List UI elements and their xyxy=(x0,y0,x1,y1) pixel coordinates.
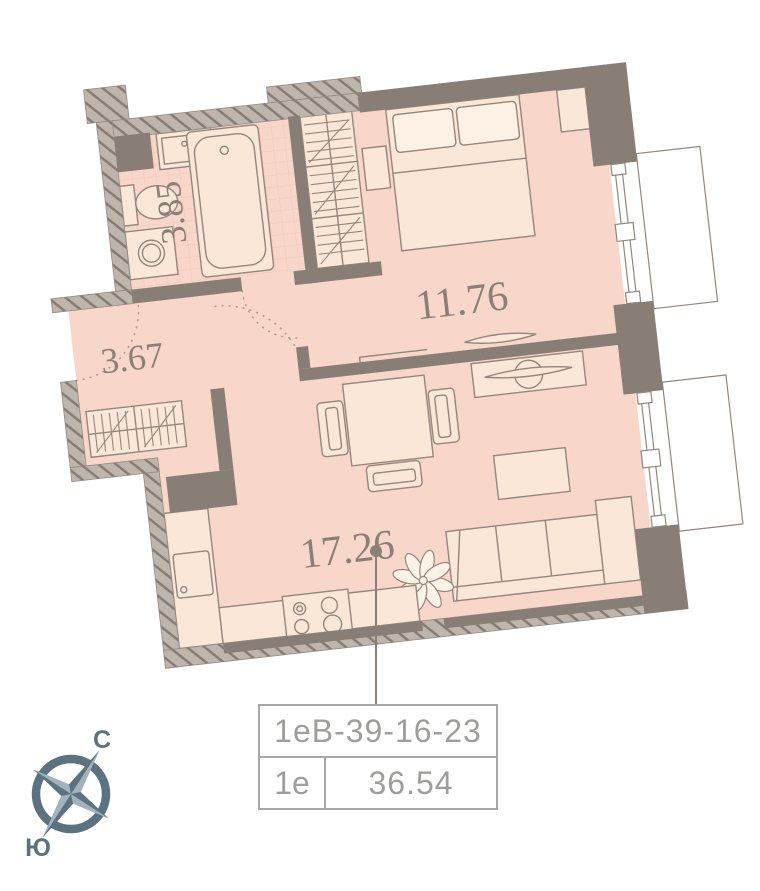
bathtub xyxy=(186,124,274,277)
unit-code: 1еВ-39-16-23 xyxy=(260,706,496,758)
unit-card-row: 1е 36.54 xyxy=(260,758,496,808)
bathroom-shaft xyxy=(114,133,154,173)
kitchen-shaft xyxy=(166,469,238,512)
floor-plan-page: 3.85 11.76 3.67 17.26 1еВ-39-16-23 1е 36… xyxy=(0,0,760,891)
compass-icon: С Ю xyxy=(18,716,148,866)
area-label-hallway: 3.67 xyxy=(99,335,166,382)
floor-plan: 3.85 11.76 3.67 17.26 xyxy=(25,13,760,686)
bed xyxy=(386,95,535,251)
area-label-bathroom: 3.85 xyxy=(148,179,195,246)
unit-card: 1еВ-39-16-23 1е 36.54 xyxy=(258,704,498,810)
leader-dot xyxy=(370,545,382,557)
compass-north-label: С xyxy=(93,726,111,754)
floor-plan-drawing: 3.85 11.76 3.67 17.26 xyxy=(25,13,760,686)
compass-south-label: Ю xyxy=(25,834,51,862)
leader-line xyxy=(375,551,377,704)
bedside-shelf xyxy=(362,146,391,190)
unit-total-area: 36.54 xyxy=(326,758,496,808)
coffee-table xyxy=(494,448,571,500)
unit-type: 1е xyxy=(260,758,326,808)
hallway-wardrobe xyxy=(86,401,187,458)
